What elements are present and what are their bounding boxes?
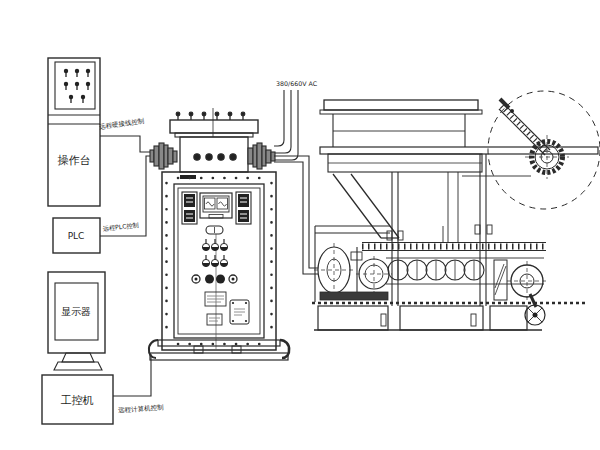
cable-gland-left (150, 143, 177, 169)
monitor: 显示器 (48, 272, 105, 370)
machine-cables (274, 156, 318, 274)
hopper (320, 100, 482, 147)
diagram-canvas: 操作台 PLC 显示器 工控机 远程硬接线控制 远程PLC控制 远程计算机控制 … (0, 0, 600, 450)
power-wire (274, 104, 298, 160)
motor-mount (320, 292, 388, 300)
nameplate-lower (207, 314, 222, 325)
monitor-neck (62, 353, 94, 362)
monitor-label: 显示器 (61, 306, 91, 317)
rotation-phantom-circle (488, 91, 600, 209)
indicator-lamps-row2 (202, 255, 227, 267)
power-supply-label: 380/660V AC (276, 80, 318, 87)
wire-plc-label: 远程PLC控制 (102, 221, 139, 233)
machine-base (312, 303, 588, 330)
wire-computer-label: 远程计算机控制 (118, 403, 164, 414)
feeder-machine (312, 91, 600, 330)
skid-hook-left (149, 340, 158, 358)
plc-label: PLC (68, 231, 85, 241)
terminal-dots (194, 154, 236, 160)
crank-arm (499, 109, 545, 155)
control-cabinet (162, 172, 276, 350)
machine-top-rail (320, 147, 598, 242)
operator-console: 操作台 (48, 58, 100, 206)
wire-console-to-cabinet (100, 136, 150, 152)
junction-box (150, 108, 275, 172)
monitor-stand (54, 362, 102, 370)
indicator-lamps-row1 (202, 239, 227, 251)
screw-flights (388, 260, 484, 280)
power-wire (274, 104, 284, 146)
pushbutton-row (192, 275, 237, 284)
console-button-icons (64, 69, 90, 103)
cable-gland-right (248, 143, 275, 169)
support-posts (387, 154, 492, 306)
lid-bolts (176, 112, 245, 120)
sprocket-assembly (488, 91, 600, 209)
meter-module-left (182, 192, 197, 224)
rating-plate (230, 300, 249, 324)
power-supply: 380/660V AC (274, 80, 318, 160)
industrial-pc: 工控机 (42, 375, 113, 424)
skid-hook-right (280, 340, 289, 358)
console-label: 操作台 (58, 154, 91, 167)
tail-drive (494, 260, 547, 325)
feed-chute (333, 174, 399, 238)
display-module (200, 193, 232, 218)
drive-motor (314, 243, 392, 300)
industrial-pc-label: 工控机 (61, 394, 94, 407)
wire-ipc-to-cabinet (113, 354, 151, 396)
feeder-control-system-diagram: 操作台 PLC 显示器 工控机 远程硬接线控制 远程PLC控制 远程计算机控制 … (0, 0, 600, 450)
plc-box: PLC (53, 218, 100, 253)
meter-module-right (236, 192, 251, 224)
wire-hardwired-label: 远程硬接线控制 (99, 117, 145, 131)
nameplate-upper (205, 292, 226, 306)
